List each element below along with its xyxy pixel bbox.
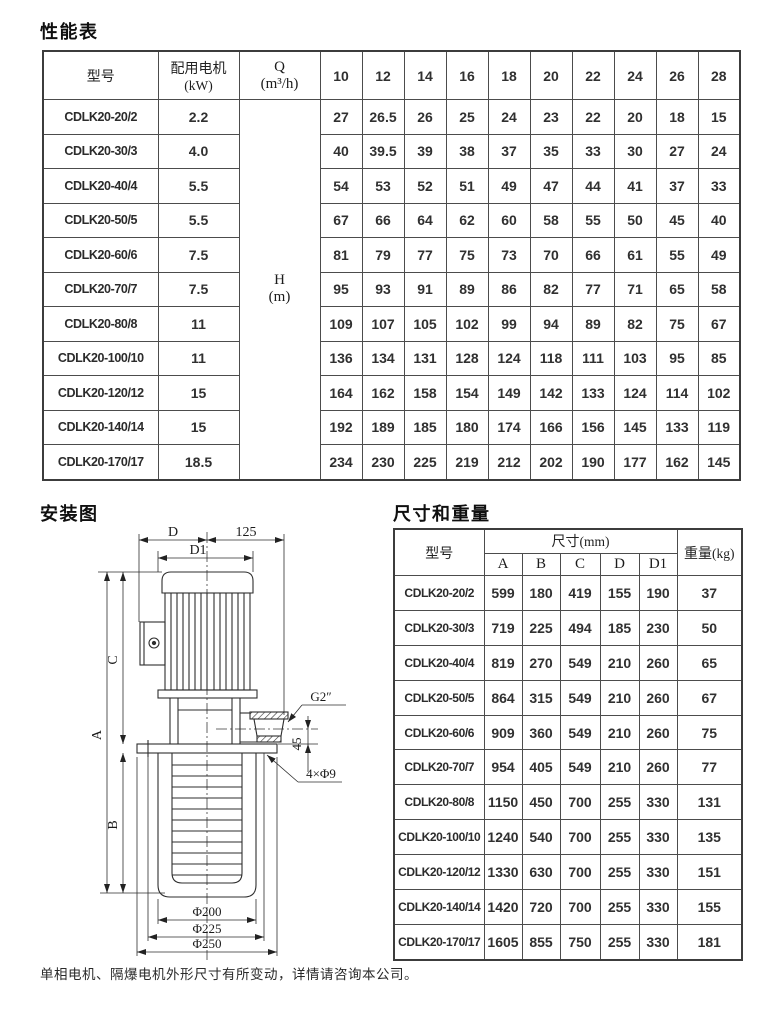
power-cell: 15 — [158, 376, 239, 411]
head-value-cell: 95 — [656, 341, 698, 376]
head-value-cell: 58 — [698, 272, 740, 307]
dims-value-cell: 185 — [600, 610, 639, 645]
dimensions-section-title: 尺寸和重量 — [393, 500, 491, 526]
head-value-cell: 166 — [530, 410, 572, 445]
head-value-cell: 54 — [320, 169, 362, 204]
head-value-cell: 44 — [572, 169, 614, 204]
head-value-cell: 154 — [446, 376, 488, 411]
model-cell: CDLK20-40/4 — [43, 169, 158, 204]
head-value-cell: 37 — [656, 169, 698, 204]
dims-model-cell: CDLK20-80/8 — [394, 785, 484, 820]
dims-value-cell: 330 — [639, 924, 677, 959]
performance-table: 型号 配用电机 (kW) Q (m³/h) 101214161820222426… — [42, 50, 741, 481]
performance-row: CDLK20-70/77.595939189868277716558 — [43, 272, 740, 307]
head-value-cell: 33 — [572, 134, 614, 169]
head-value-cell: 158 — [404, 376, 446, 411]
head-value-cell: 45 — [656, 203, 698, 238]
head-value-cell: 75 — [446, 238, 488, 273]
dims-value-cell: 1330 — [484, 855, 522, 890]
dim-label-phi250: Φ250 — [192, 936, 221, 951]
dims-value-cell: 700 — [560, 785, 600, 820]
model-cell: CDLK20-140/14 — [43, 410, 158, 445]
pipe-port-body — [254, 719, 284, 736]
dims-weight-cell: 50 — [677, 610, 742, 645]
head-value-cell: 162 — [362, 376, 404, 411]
dims-value-cell: 315 — [522, 680, 560, 715]
dims-value-cell: 210 — [600, 645, 639, 680]
head-value-cell: 27 — [656, 134, 698, 169]
dims-value-cell: 255 — [600, 820, 639, 855]
head-value-cell: 55 — [572, 203, 614, 238]
head-value-cell: 67 — [698, 307, 740, 342]
performance-section-title: 性能表 — [40, 18, 99, 44]
dims-value-cell: 255 — [600, 890, 639, 925]
head-label: H — [240, 272, 320, 289]
head-value-cell: 73 — [488, 238, 530, 273]
dims-weight-cell: 65 — [677, 645, 742, 680]
dims-value-cell: 819 — [484, 645, 522, 680]
dims-weight-header: 重量(kg) — [677, 529, 742, 576]
dims-value-cell: 549 — [560, 715, 600, 750]
dims-weight-cell: 155 — [677, 890, 742, 925]
dims-value-cell: 210 — [600, 680, 639, 715]
dims-weight-cell: 151 — [677, 855, 742, 890]
dims-body: CDLK20-20/259918041915519037CDLK20-30/37… — [394, 576, 742, 960]
dims-value-cell: 255 — [600, 855, 639, 890]
size-column-header: C — [560, 553, 600, 575]
head-value-cell: 60 — [488, 203, 530, 238]
dims-row: CDLK20-100/101240540700255330135 — [394, 820, 742, 855]
head-value-cell: 66 — [572, 238, 614, 273]
performance-row: CDLK20-80/811109107105102999489827567 — [43, 307, 740, 342]
dim-label-c: C — [106, 655, 121, 664]
footer-note: 单相电机、隔爆电机外形尺寸有所变动，详情请咨询本公司。 — [40, 963, 418, 983]
dims-value-cell: 360 — [522, 715, 560, 750]
head-value-cell: 133 — [572, 376, 614, 411]
power-cell: 4.0 — [158, 134, 239, 169]
dims-model-cell: CDLK20-140/14 — [394, 890, 484, 925]
head-value-cell: 15 — [698, 100, 740, 135]
dims-weight-cell: 67 — [677, 680, 742, 715]
dims-weight-cell: 77 — [677, 750, 742, 785]
dims-value-cell: 210 — [600, 715, 639, 750]
dims-model-cell: CDLK20-70/7 — [394, 750, 484, 785]
dim-label-holes: 4×Φ9 — [306, 766, 336, 781]
installation-diagram: D 125 D1 A C B G2″ 45 4×Φ9 Φ200 Φ225 Φ25… — [30, 520, 390, 990]
size-column-header: D1 — [639, 553, 677, 575]
performance-body: CDLK20-20/22.2H(m)2726.52625242322201815… — [43, 100, 740, 480]
head-value-cell: 109 — [320, 307, 362, 342]
dims-value-cell: 1240 — [484, 820, 522, 855]
head-value-cell: 124 — [488, 341, 530, 376]
head-value-cell: 40 — [698, 203, 740, 238]
flow-value-header: 10 — [320, 51, 362, 100]
head-value-cell: 156 — [572, 410, 614, 445]
dims-header-row-1: 型号 尺寸(mm) 重量(kg) — [394, 529, 742, 553]
head-value-cell: 103 — [614, 341, 656, 376]
dims-value-cell: 419 — [560, 576, 600, 611]
performance-row: CDLK20-20/22.2H(m)2726.52625242322201815 — [43, 100, 740, 135]
power-cell: 11 — [158, 341, 239, 376]
head-value-cell: 102 — [446, 307, 488, 342]
head-value-cell: 79 — [362, 238, 404, 273]
power-cell: 15 — [158, 410, 239, 445]
dims-model-cell: CDLK20-20/2 — [394, 576, 484, 611]
head-value-cell: 62 — [446, 203, 488, 238]
dims-value-cell: 450 — [522, 785, 560, 820]
dims-row: CDLK20-40/481927054921026065 — [394, 645, 742, 680]
head-value-cell: 37 — [488, 134, 530, 169]
head-value-cell: 192 — [320, 410, 362, 445]
dims-value-cell: 330 — [639, 785, 677, 820]
dims-weight-cell: 75 — [677, 715, 742, 750]
dims-row: CDLK20-30/371922549418523050 — [394, 610, 742, 645]
head-value-cell: 225 — [404, 445, 446, 480]
dims-value-cell: 855 — [522, 924, 560, 959]
head-unit-cell: H(m) — [239, 100, 320, 480]
dims-row: CDLK20-170/171605855750255330181 — [394, 924, 742, 959]
head-value-cell: 40 — [320, 134, 362, 169]
dims-value-cell: 155 — [600, 576, 639, 611]
dims-value-cell: 210 — [600, 750, 639, 785]
head-value-cell: 71 — [614, 272, 656, 307]
dims-value-cell: 255 — [600, 785, 639, 820]
head-value-cell: 185 — [404, 410, 446, 445]
flow-value-header: 20 — [530, 51, 572, 100]
dims-model-cell: CDLK20-50/5 — [394, 680, 484, 715]
head-value-cell: 82 — [530, 272, 572, 307]
model-cell: CDLK20-120/12 — [43, 376, 158, 411]
head-value-cell: 119 — [698, 410, 740, 445]
head-value-cell: 52 — [404, 169, 446, 204]
dims-weight-header-cn: 重量 — [684, 545, 712, 561]
head-value-cell: 49 — [488, 169, 530, 204]
head-value-cell: 35 — [530, 134, 572, 169]
dims-value-cell: 225 — [522, 610, 560, 645]
dim-label-phi225: Φ225 — [192, 921, 221, 936]
head-value-cell: 49 — [698, 238, 740, 273]
dims-value-cell: 630 — [522, 855, 560, 890]
dims-value-cell: 270 — [522, 645, 560, 680]
performance-row: CDLK20-100/10111361341311281241181111039… — [43, 341, 740, 376]
dims-value-cell: 549 — [560, 750, 600, 785]
dims-value-cell: 540 — [522, 820, 560, 855]
dims-row: CDLK20-140/141420720700255330155 — [394, 890, 742, 925]
dims-value-cell: 719 — [484, 610, 522, 645]
head-value-cell: 134 — [362, 341, 404, 376]
flow-value-header: 18 — [488, 51, 530, 100]
head-value-cell: 114 — [656, 376, 698, 411]
head-value-cell: 149 — [488, 376, 530, 411]
dims-size-header-unit: (mm) — [580, 534, 610, 549]
dims-value-cell: 255 — [600, 924, 639, 959]
dims-row: CDLK20-70/795440554921026077 — [394, 750, 742, 785]
head-value-cell: 89 — [572, 307, 614, 342]
pipe-port-top — [250, 712, 288, 719]
model-cell: CDLK20-20/2 — [43, 100, 158, 135]
head-value-cell: 85 — [698, 341, 740, 376]
flow-value-header: 14 — [404, 51, 446, 100]
model-cell: CDLK20-60/6 — [43, 238, 158, 273]
dims-value-cell: 230 — [639, 610, 677, 645]
dims-size-header-cn: 尺寸 — [552, 533, 580, 549]
head-value-cell: 70 — [530, 238, 572, 273]
pipe-port-lip — [257, 736, 281, 742]
size-column-header: D — [600, 553, 639, 575]
flow-value-header: 16 — [446, 51, 488, 100]
head-value-cell: 64 — [404, 203, 446, 238]
power-cell: 7.5 — [158, 272, 239, 307]
head-value-cell: 24 — [698, 134, 740, 169]
head-value-cell: 22 — [572, 100, 614, 135]
head-value-cell: 219 — [446, 445, 488, 480]
dims-row: CDLK20-50/586431554921026067 — [394, 680, 742, 715]
flow-q-label: Q — [240, 59, 320, 76]
dims-value-cell: 549 — [560, 645, 600, 680]
head-value-cell: 81 — [320, 238, 362, 273]
head-value-cell: 133 — [656, 410, 698, 445]
dims-value-cell: 864 — [484, 680, 522, 715]
performance-row: CDLK20-60/67.581797775737066615549 — [43, 238, 740, 273]
dims-weight-cell: 181 — [677, 924, 742, 959]
power-cell: 5.5 — [158, 203, 239, 238]
flow-value-header: 22 — [572, 51, 614, 100]
model-cell: CDLK20-170/17 — [43, 445, 158, 480]
dim-label-g2: G2″ — [310, 689, 331, 704]
head-value-cell: 93 — [362, 272, 404, 307]
motor-fins — [171, 593, 244, 690]
dims-value-cell: 909 — [484, 715, 522, 750]
dims-value-cell: 260 — [639, 715, 677, 750]
head-value-cell: 25 — [446, 100, 488, 135]
dims-value-cell: 700 — [560, 890, 600, 925]
head-value-cell: 39.5 — [362, 134, 404, 169]
dims-model-cell: CDLK20-100/10 — [394, 820, 484, 855]
power-cell: 18.5 — [158, 445, 239, 480]
dim-label-45: 45 — [289, 738, 304, 751]
head-value-cell: 30 — [614, 134, 656, 169]
dims-value-cell: 720 — [522, 890, 560, 925]
head-value-cell: 94 — [530, 307, 572, 342]
performance-row: CDLK20-30/34.04039.53938373533302724 — [43, 134, 740, 169]
head-value-cell: 142 — [530, 376, 572, 411]
dims-value-cell: 700 — [560, 855, 600, 890]
head-value-cell: 51 — [446, 169, 488, 204]
head-value-cell: 47 — [530, 169, 572, 204]
dims-value-cell: 180 — [522, 576, 560, 611]
head-value-cell: 61 — [614, 238, 656, 273]
dims-value-cell: 260 — [639, 680, 677, 715]
head-value-cell: 27 — [320, 100, 362, 135]
dims-value-cell: 405 — [522, 750, 560, 785]
head-value-cell: 23 — [530, 100, 572, 135]
performance-row: CDLK20-50/55.567666462605855504540 — [43, 203, 740, 238]
size-column-header: A — [484, 553, 522, 575]
flow-unit-header: Q (m³/h) — [239, 51, 320, 100]
head-value-cell: 145 — [614, 410, 656, 445]
head-value-cell: 230 — [362, 445, 404, 480]
dims-value-cell: 494 — [560, 610, 600, 645]
dims-model-cell: CDLK20-170/17 — [394, 924, 484, 959]
head-value-cell: 136 — [320, 341, 362, 376]
dims-row: CDLK20-120/121330630700255330151 — [394, 855, 742, 890]
size-column-header: B — [522, 553, 560, 575]
flow-value-header: 28 — [698, 51, 740, 100]
model-cell: CDLK20-100/10 — [43, 341, 158, 376]
dims-value-cell: 750 — [560, 924, 600, 959]
dims-value-cell: 1605 — [484, 924, 522, 959]
head-value-cell: 95 — [320, 272, 362, 307]
dims-model-header: 型号 — [394, 529, 484, 576]
dim-label-d1: D1 — [189, 543, 206, 558]
dims-value-cell: 330 — [639, 855, 677, 890]
dims-weight-cell: 37 — [677, 576, 742, 611]
flow-value-header: 26 — [656, 51, 698, 100]
dims-value-cell: 330 — [639, 820, 677, 855]
dims-weight-header-unit: (kg) — [712, 546, 735, 561]
dims-value-cell: 599 — [484, 576, 522, 611]
motor-header-line2: (kW) — [159, 78, 239, 94]
head-value-cell: 18 — [656, 100, 698, 135]
dims-value-cell: 954 — [484, 750, 522, 785]
head-value-cell: 164 — [320, 376, 362, 411]
head-value-cell: 180 — [446, 410, 488, 445]
performance-row: CDLK20-120/12151641621581541491421331241… — [43, 376, 740, 411]
head-value-cell: 202 — [530, 445, 572, 480]
dims-model-cell: CDLK20-40/4 — [394, 645, 484, 680]
dims-value-cell: 549 — [560, 680, 600, 715]
head-value-cell: 41 — [614, 169, 656, 204]
dim-label-d: D — [168, 525, 178, 540]
flow-q-unit: (m³/h) — [240, 76, 320, 93]
head-value-cell: 189 — [362, 410, 404, 445]
performance-row: CDLK20-140/14151921891851801741661561451… — [43, 410, 740, 445]
head-value-cell: 111 — [572, 341, 614, 376]
head-value-cell: 33 — [698, 169, 740, 204]
model-cell: CDLK20-50/5 — [43, 203, 158, 238]
head-value-cell: 162 — [656, 445, 698, 480]
dims-value-cell: 260 — [639, 750, 677, 785]
head-value-cell: 53 — [362, 169, 404, 204]
head-value-cell: 91 — [404, 272, 446, 307]
head-value-cell: 107 — [362, 307, 404, 342]
head-value-cell: 50 — [614, 203, 656, 238]
dimensions-table: 型号 尺寸(mm) 重量(kg) ABCDD1 CDLK20-20/259918… — [393, 528, 743, 961]
head-value-cell: 65 — [656, 272, 698, 307]
head-value-cell: 20 — [614, 100, 656, 135]
head-value-cell: 86 — [488, 272, 530, 307]
head-value-cell: 58 — [530, 203, 572, 238]
motor-flange — [158, 690, 257, 698]
power-cell: 7.5 — [158, 238, 239, 273]
dim-label-a: A — [90, 729, 105, 740]
head-value-cell: 118 — [530, 341, 572, 376]
power-cell: 11 — [158, 307, 239, 342]
head-value-cell: 177 — [614, 445, 656, 480]
head-value-cell: 145 — [698, 445, 740, 480]
head-unit: (m) — [240, 289, 320, 306]
dims-weight-cell: 135 — [677, 820, 742, 855]
dims-value-cell: 260 — [639, 645, 677, 680]
model-cell: CDLK20-80/8 — [43, 307, 158, 342]
dims-value-cell: 190 — [639, 576, 677, 611]
model-column-header: 型号 — [43, 51, 158, 100]
dims-value-cell: 330 — [639, 890, 677, 925]
power-cell: 2.2 — [158, 100, 239, 135]
head-value-cell: 131 — [404, 341, 446, 376]
model-cell: CDLK20-30/3 — [43, 134, 158, 169]
head-value-cell: 77 — [572, 272, 614, 307]
performance-header-row: 型号 配用电机 (kW) Q (m³/h) 101214161820222426… — [43, 51, 740, 100]
head-value-cell: 89 — [446, 272, 488, 307]
head-value-cell: 128 — [446, 341, 488, 376]
dims-value-cell: 1150 — [484, 785, 522, 820]
dims-model-cell: CDLK20-120/12 — [394, 855, 484, 890]
head-value-cell: 39 — [404, 134, 446, 169]
flow-value-header: 12 — [362, 51, 404, 100]
dims-model-cell: CDLK20-30/3 — [394, 610, 484, 645]
dims-row: CDLK20-60/690936054921026075 — [394, 715, 742, 750]
dim-label-b: B — [106, 820, 121, 829]
dims-row: CDLK20-80/81150450700255330131 — [394, 785, 742, 820]
dims-model-cell: CDLK20-60/6 — [394, 715, 484, 750]
head-value-cell: 212 — [488, 445, 530, 480]
performance-row: CDLK20-170/1718.523423022521921220219017… — [43, 445, 740, 480]
dim-label-125: 125 — [236, 525, 257, 540]
head-value-cell: 26.5 — [362, 100, 404, 135]
motor-column-header: 配用电机 (kW) — [158, 51, 239, 100]
dims-value-cell: 700 — [560, 820, 600, 855]
performance-row: CDLK20-40/45.554535251494744413733 — [43, 169, 740, 204]
dims-value-cell: 1420 — [484, 890, 522, 925]
head-value-cell: 66 — [362, 203, 404, 238]
head-value-cell: 67 — [320, 203, 362, 238]
diagram-dimensions: D 125 D1 A C B G2″ 45 4×Φ9 Φ200 Φ225 Φ25… — [90, 525, 346, 956]
head-value-cell: 234 — [320, 445, 362, 480]
head-value-cell: 24 — [488, 100, 530, 135]
power-cell: 5.5 — [158, 169, 239, 204]
head-value-cell: 124 — [614, 376, 656, 411]
motor-header-line1: 配用电机 — [159, 58, 239, 78]
dims-row: CDLK20-20/259918041915519037 — [394, 576, 742, 611]
head-value-cell: 26 — [404, 100, 446, 135]
head-value-cell: 102 — [698, 376, 740, 411]
dims-size-header: 尺寸(mm) — [484, 529, 677, 553]
head-value-cell: 75 — [656, 307, 698, 342]
head-value-cell: 55 — [656, 238, 698, 273]
dim-label-phi200: Φ200 — [192, 904, 221, 919]
flow-value-header: 24 — [614, 51, 656, 100]
head-value-cell: 82 — [614, 307, 656, 342]
pump-outline — [137, 572, 288, 897]
head-value-cell: 77 — [404, 238, 446, 273]
head-value-cell: 99 — [488, 307, 530, 342]
head-value-cell: 190 — [572, 445, 614, 480]
head-value-cell: 174 — [488, 410, 530, 445]
dims-weight-cell: 131 — [677, 785, 742, 820]
model-cell: CDLK20-70/7 — [43, 272, 158, 307]
head-value-cell: 38 — [446, 134, 488, 169]
head-value-cell: 105 — [404, 307, 446, 342]
